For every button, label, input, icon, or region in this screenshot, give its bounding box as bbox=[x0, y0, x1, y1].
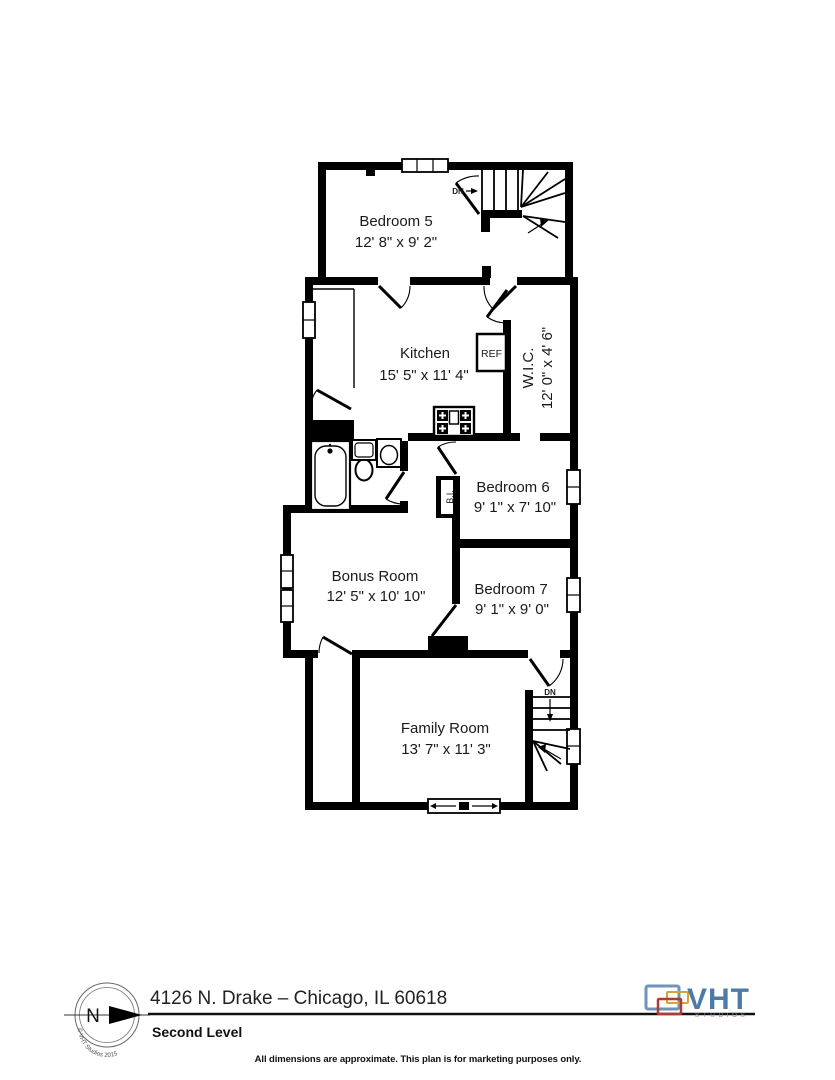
door-bedroom5-kitchen bbox=[379, 286, 410, 308]
bonus-room-name: Bonus Room bbox=[332, 568, 419, 585]
window-bedroom6-right bbox=[567, 470, 580, 504]
floorplan-page: DN DN bbox=[0, 0, 835, 1080]
dn-arrow-upper bbox=[471, 188, 478, 194]
wall-mass bbox=[428, 636, 468, 658]
door-bathroom bbox=[386, 472, 404, 504]
bedroom7-dims: 9' 1" x 9' 0" bbox=[475, 601, 549, 618]
bedroom6-name: Bedroom 6 bbox=[476, 479, 549, 496]
wic-dims: 12' 0" x 4' 6" bbox=[539, 327, 556, 409]
dn-label-lower: DN bbox=[544, 688, 556, 697]
wic-name: W.I.C. bbox=[520, 348, 537, 389]
family-room-name: Family Room bbox=[401, 720, 489, 737]
window-family-bottom bbox=[428, 799, 500, 813]
logo-blue-rect bbox=[646, 986, 679, 1009]
built-in-closet: B.I. bbox=[436, 476, 460, 518]
vht-logo: VHT STUDIOS bbox=[646, 983, 750, 1019]
bedroom5-dims: 12' 8" x 9' 2" bbox=[355, 234, 437, 251]
window-bonus-left-2 bbox=[281, 590, 293, 622]
address-text: 4126 N. Drake – Chicago, IL 60618 bbox=[150, 988, 447, 1009]
north-arrow bbox=[109, 1006, 142, 1024]
bonus-room-dims: 12' 5" x 10' 10" bbox=[327, 588, 426, 605]
dn-arrow-lower bbox=[547, 714, 553, 722]
upper-stairs: DN bbox=[452, 170, 565, 238]
refrigerator: REF bbox=[477, 334, 506, 371]
family-room-dims: 13' 7" x 11' 3" bbox=[401, 741, 491, 758]
floor-plan-svg: DN DN bbox=[0, 0, 835, 1080]
compass: N © VHT Studios 2015 bbox=[64, 983, 150, 1059]
bedroom5-name: Bedroom 5 bbox=[359, 213, 432, 230]
kitchen-name: Kitchen bbox=[400, 345, 450, 362]
bathtub-icon bbox=[311, 441, 350, 510]
compass-copyright: © VHT Studios 2015 bbox=[76, 1028, 119, 1059]
stove-icon bbox=[434, 407, 474, 436]
door-family-stairs bbox=[530, 659, 563, 686]
window-bonus-left-1 bbox=[281, 555, 293, 588]
bedroom6-dims: 9' 1" x 7' 10" bbox=[474, 499, 556, 516]
level-text: Second Level bbox=[152, 1024, 242, 1040]
sink-icon bbox=[377, 439, 401, 467]
kitchen-dims: 15' 5" x 11' 4" bbox=[379, 367, 469, 384]
window-kitchen-left bbox=[303, 302, 315, 338]
toilet-icon bbox=[352, 440, 376, 481]
door-bonus-room bbox=[319, 637, 352, 654]
lower-stairs: DN bbox=[533, 688, 570, 771]
ref-label: REF bbox=[481, 348, 502, 360]
logo-sub: STUDIOS bbox=[695, 1012, 748, 1019]
dn-label-upper: DN bbox=[452, 187, 464, 196]
wall-chase bbox=[305, 420, 354, 441]
window-bedroom5-top bbox=[402, 159, 448, 172]
bedroom7-name: Bedroom 7 bbox=[474, 581, 547, 598]
door-bedroom6 bbox=[438, 442, 456, 474]
built-in-label: B.I. bbox=[445, 490, 455, 504]
compass-north-label: N bbox=[86, 1006, 100, 1027]
window-family-right bbox=[567, 729, 580, 764]
window-bedroom7-right bbox=[567, 578, 580, 612]
door-kitchen-closet bbox=[312, 390, 351, 409]
disclaimer-text: All dimensions are approximate. This pla… bbox=[255, 1054, 582, 1065]
